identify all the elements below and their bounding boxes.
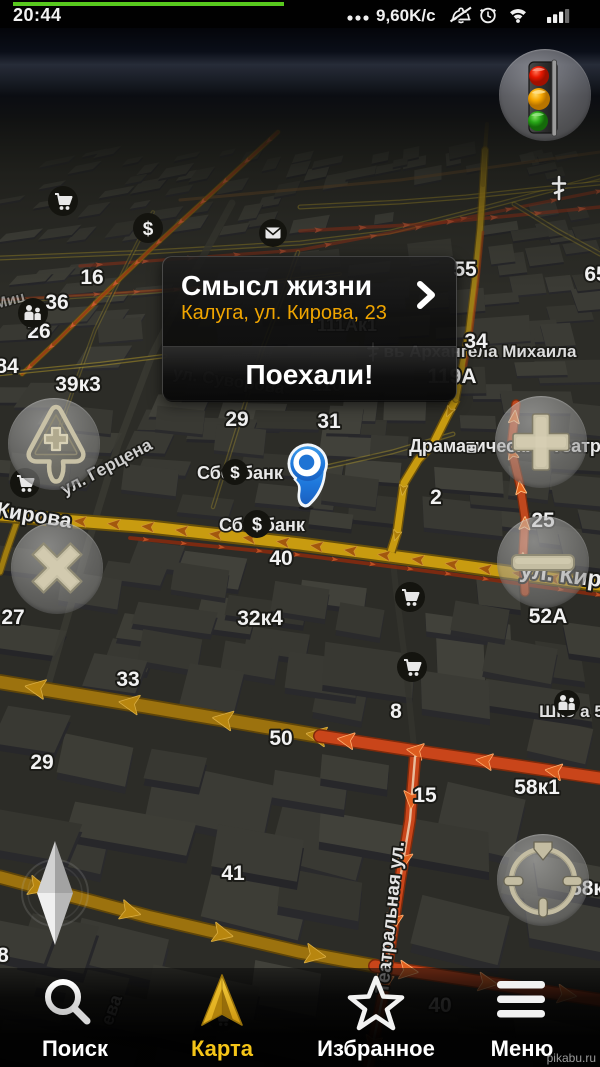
svg-text:58к1: 58к1 (514, 776, 560, 799)
svg-text:29: 29 (225, 408, 248, 431)
svg-text:36: 36 (45, 291, 68, 314)
svg-text:40: 40 (269, 547, 292, 570)
svg-text:8: 8 (0, 944, 9, 967)
svg-text:27: 27 (1, 606, 24, 629)
svg-text:65: 65 (584, 263, 600, 286)
svg-text:33: 33 (116, 668, 139, 691)
svg-text:16: 16 (80, 266, 103, 289)
svg-text:50: 50 (269, 727, 292, 750)
svg-text:$: $ (143, 219, 154, 240)
svg-text:32к4: 32к4 (237, 607, 283, 630)
svg-text:29: 29 (30, 751, 53, 774)
svg-text:41: 41 (221, 862, 245, 885)
svg-text:$: $ (230, 463, 240, 482)
svg-text:39к3: 39к3 (55, 373, 101, 396)
svg-text:2: 2 (430, 486, 442, 509)
svg-text:8: 8 (390, 700, 402, 723)
svg-text:34: 34 (464, 330, 488, 353)
svg-text:52А: 52А (529, 605, 568, 628)
svg-text:31: 31 (317, 410, 341, 433)
svg-text:84: 84 (0, 355, 19, 378)
svg-text:9,60K/c: 9,60K/c (376, 6, 436, 25)
svg-text:а 5: а 5 (580, 702, 600, 721)
svg-text:$: $ (252, 514, 262, 534)
svg-text:15: 15 (413, 784, 437, 807)
